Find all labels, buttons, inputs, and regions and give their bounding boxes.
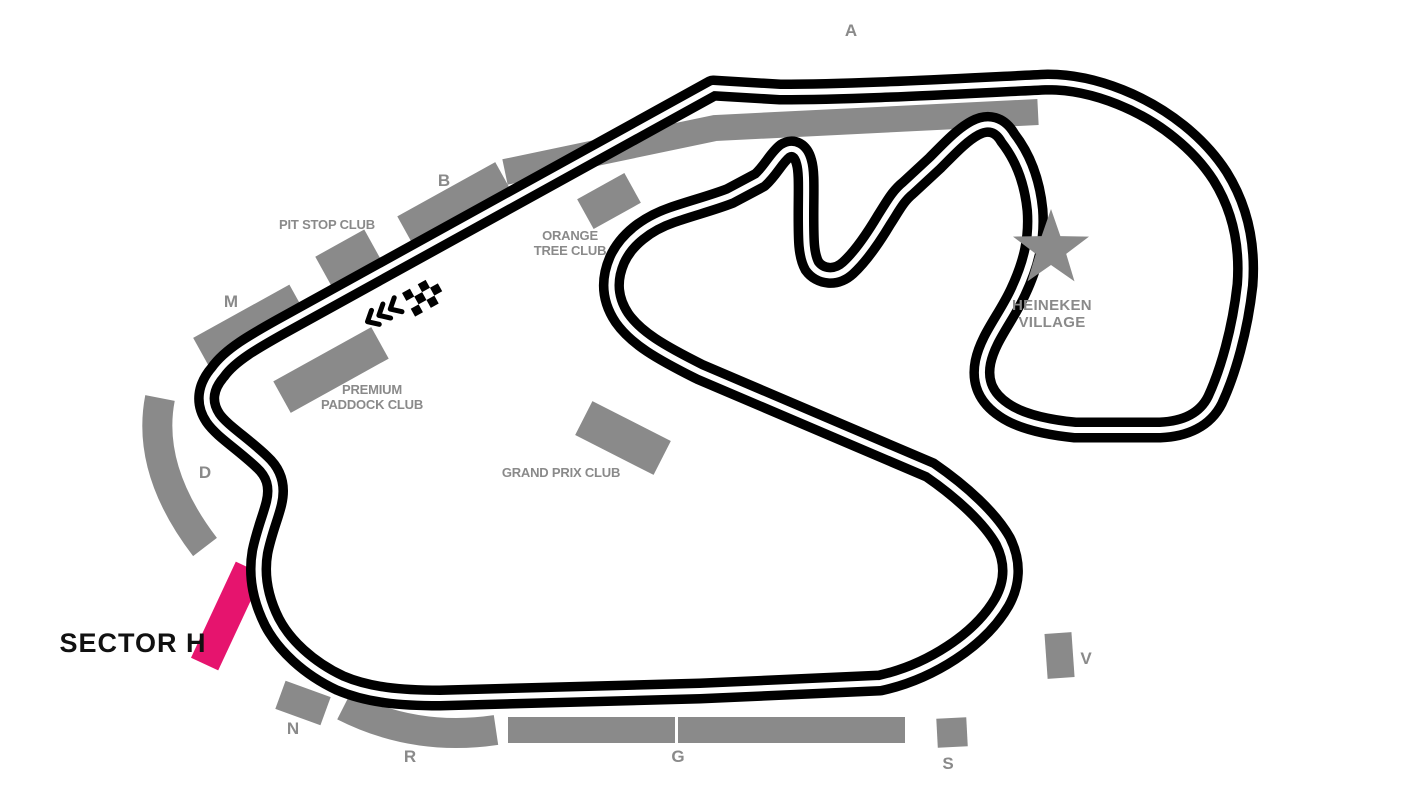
club-premium-paddock-label-line2: PADDOCK CLUB [321, 397, 423, 412]
chevrons-left-icon [364, 298, 402, 329]
club-orange-tree-label-line1: ORANGE [542, 228, 598, 243]
club-orange-tree-label-line2: TREE CLUB [534, 243, 607, 258]
grandstand-g-right[interactable] [678, 717, 905, 743]
grandstand-r-label: R [404, 747, 416, 766]
checkered-flag-icon [402, 276, 447, 317]
club-grand-prix-label: GRAND PRIX CLUB [502, 465, 620, 480]
grandstand-v-label: V [1080, 649, 1092, 668]
grandstand-v[interactable] [1044, 632, 1074, 679]
circuit-map-svg: A B M D N R G S V PIT STOP CLUB PREMIUM … [0, 0, 1401, 800]
grandstand-d-label: D [199, 463, 211, 482]
club-premium-paddock-label-line1: PREMIUM [342, 382, 402, 397]
grandstand-g-left[interactable] [508, 717, 675, 743]
circuit-seating-map: A B M D N R G S V PIT STOP CLUB PREMIUM … [0, 0, 1401, 800]
grandstand-b-label: B [438, 171, 450, 190]
club-orange-tree-stand[interactable] [577, 173, 641, 229]
grandstand-m-label: M [224, 292, 238, 311]
club-grand-prix-stand[interactable] [575, 401, 671, 475]
grandstand-a-label: A [845, 21, 857, 40]
grandstand-s[interactable] [936, 717, 967, 748]
grandstand-s-label: S [942, 754, 953, 773]
grandstand-n-label: N [287, 719, 299, 738]
grandstand-d[interactable] [157, 398, 205, 547]
sector-h-label: SECTOR H [59, 628, 206, 658]
heineken-village-label-line1: HEINEKEN [1012, 297, 1092, 314]
grandstand-g-label: G [671, 747, 684, 766]
club-pit-stop-label: PIT STOP CLUB [279, 217, 375, 232]
heineken-village-label-line2: VILLAGE [1018, 314, 1085, 331]
